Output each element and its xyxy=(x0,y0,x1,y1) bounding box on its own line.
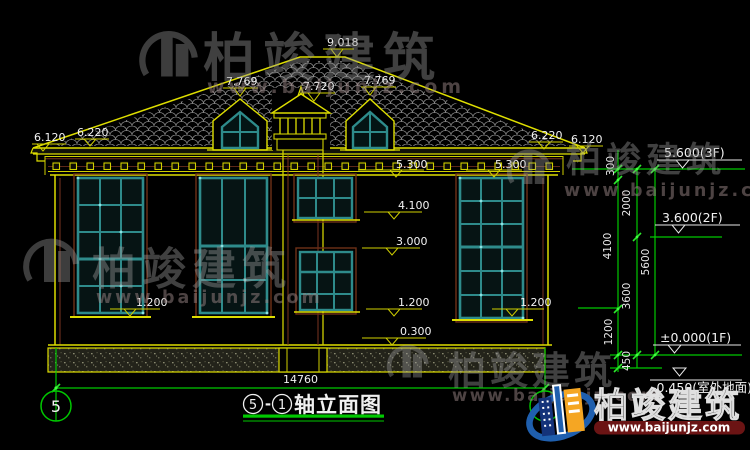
dim-0300: 0.300 xyxy=(400,325,432,338)
dim-sill-right: 1.200 xyxy=(520,296,552,309)
logo-url-text: www.baijunjz.com xyxy=(608,421,731,435)
dim-3000: 3.000 xyxy=(396,235,428,248)
title-axis-to: 1 xyxy=(278,398,286,413)
chain-5600: 5600 xyxy=(640,249,652,276)
dim-total-width: 14760 xyxy=(283,373,318,386)
dim-cornice-left: 5.300 xyxy=(396,158,428,171)
watermark-url: www.baijunjz.com xyxy=(207,76,465,98)
watermark-url: www.baijunjz.com xyxy=(564,181,750,201)
title-axis-from: 5 xyxy=(249,398,257,413)
level-1f: ±0.000(1F) xyxy=(660,330,731,345)
watermark-logo-icon xyxy=(26,242,76,282)
watermark-top: 柏竣建筑 www.baijunjz.com xyxy=(142,29,465,98)
watermark-left: 柏竣建筑 www.baijunjz.com xyxy=(26,242,323,308)
entry-step xyxy=(279,348,327,372)
dim-eave-right-inner: 6.220 xyxy=(531,129,563,142)
title-underline-thick xyxy=(243,415,384,418)
watermark-brand: 柏竣建筑 xyxy=(566,140,726,181)
axis-label-5: 5 xyxy=(51,397,61,416)
brand-logo-color: 柏竣建筑 www.baijunjz.com xyxy=(523,382,745,447)
title-text: 轴立面图 xyxy=(294,393,382,417)
chain-1200: 1200 xyxy=(603,319,615,346)
window-c xyxy=(292,174,360,222)
drawing-title: 5 - 1 轴立面图 xyxy=(243,393,384,421)
cad-elevation-canvas: 9.018 7.769 7.720 7.769 6.120 6.220 6.22… xyxy=(0,0,750,450)
title-dash: - xyxy=(265,395,271,413)
level-2f: 3.600(2F) xyxy=(662,210,723,225)
watermark-logo-icon xyxy=(142,34,194,76)
dentil-band xyxy=(48,161,560,170)
dim-4100: 4.100 xyxy=(398,199,430,212)
watermark-url: www.baijunjz.com xyxy=(96,288,323,308)
dim-sill-center: 1.200 xyxy=(398,296,430,309)
elevation-drawing: 9.018 7.769 7.720 7.769 6.120 6.220 6.22… xyxy=(0,0,750,450)
chain-4100: 4100 xyxy=(602,233,614,260)
chain-3600: 3600 xyxy=(621,283,633,310)
dim-eave-left-outer: 6.120 xyxy=(34,131,66,144)
dim-eave-left-inner: 6.220 xyxy=(77,126,109,139)
chain-450: 450 xyxy=(621,351,633,371)
